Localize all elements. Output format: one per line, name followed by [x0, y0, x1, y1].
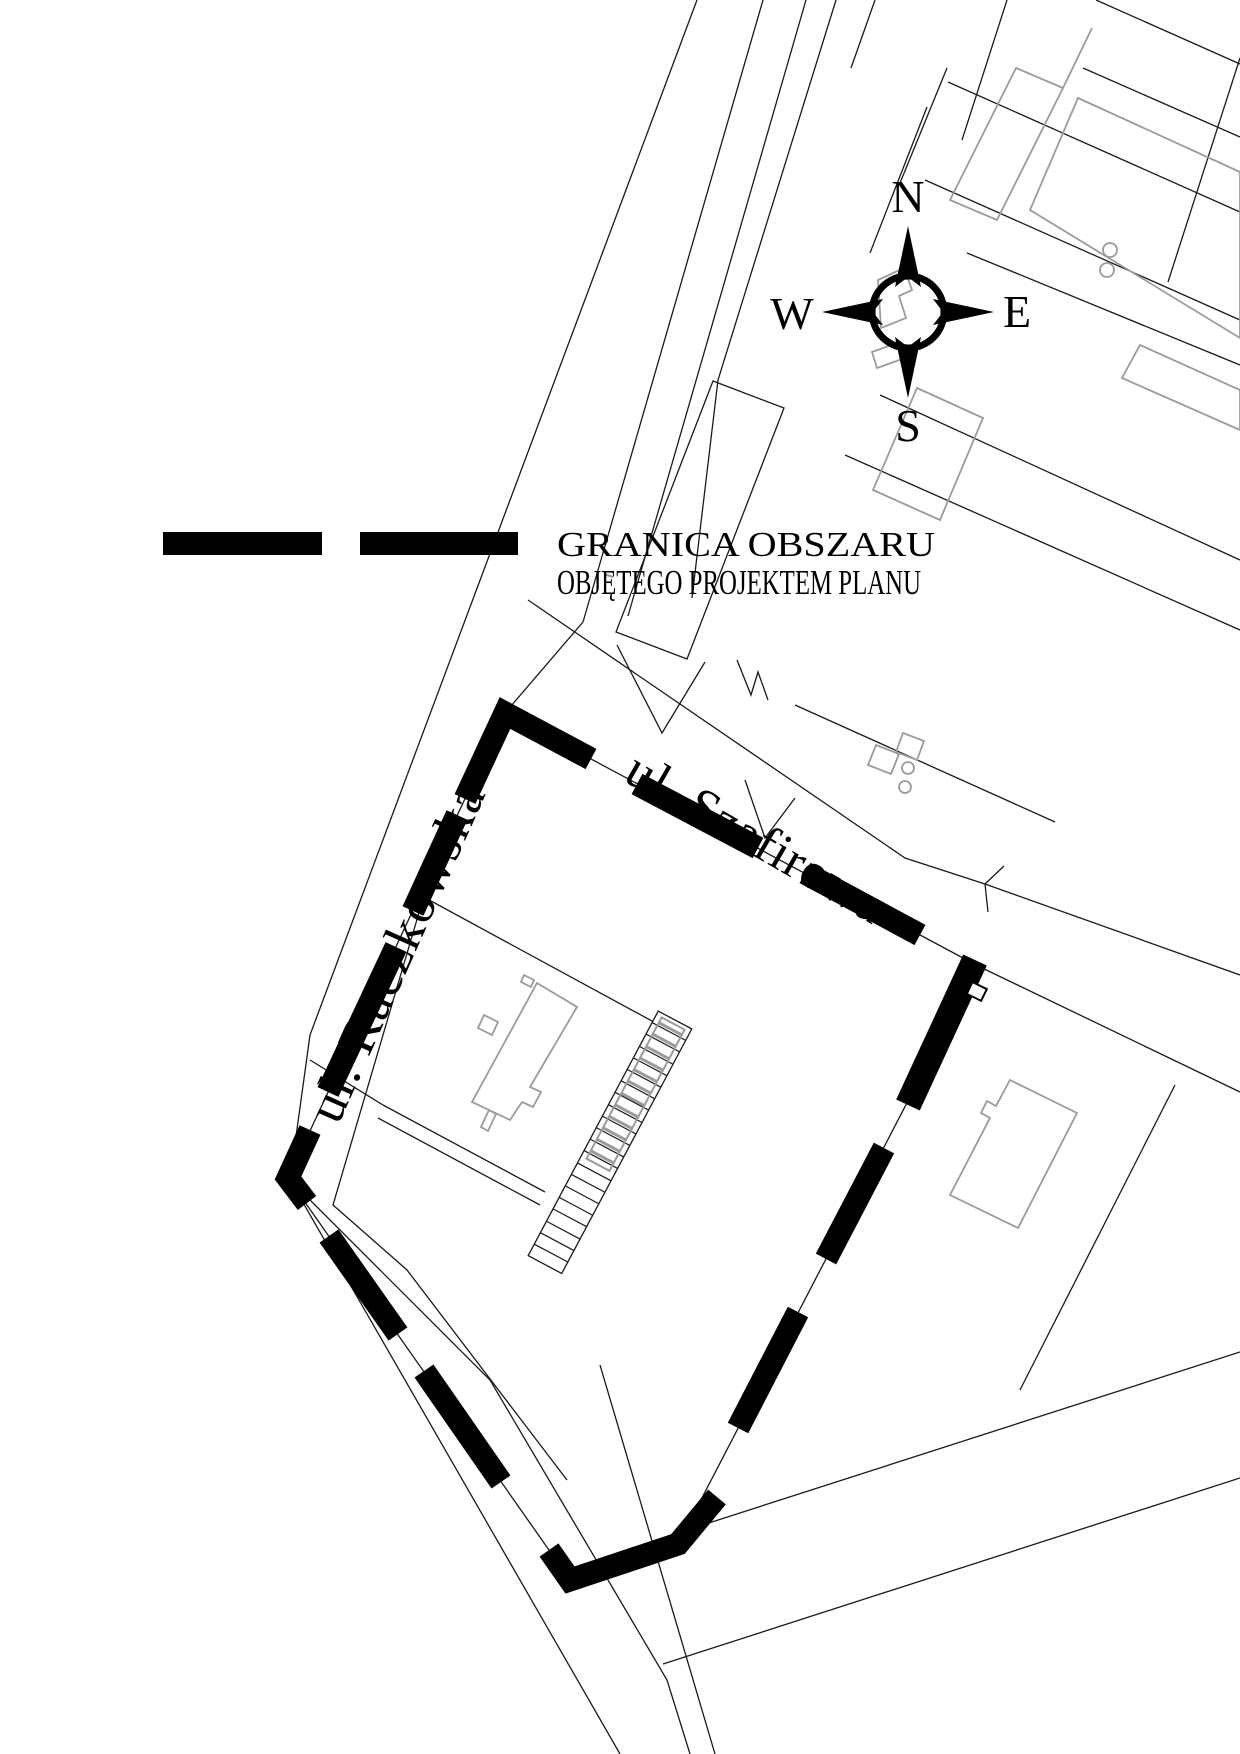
compass-label-west: W — [770, 288, 814, 339]
map-background — [0, 0, 1240, 1754]
compass-label-north: N — [891, 171, 924, 222]
legend-boundary-dash-sample — [163, 532, 322, 555]
legend-boundary-dash-sample — [360, 532, 518, 555]
legend-label-line2: OBJĘTEGO PROJEKTEM PLANU — [557, 563, 921, 602]
plan-map: N W E S GRANICA OBSZARU OBJĘTEGO PROJEKT… — [0, 0, 1240, 1754]
plan-page: N W E S GRANICA OBSZARU OBJĘTEGO PROJEKT… — [0, 0, 1240, 1754]
legend-label-line1: GRANICA OBSZARU — [557, 525, 935, 564]
compass-label-east: E — [1003, 286, 1031, 337]
compass-label-south: S — [895, 400, 921, 451]
